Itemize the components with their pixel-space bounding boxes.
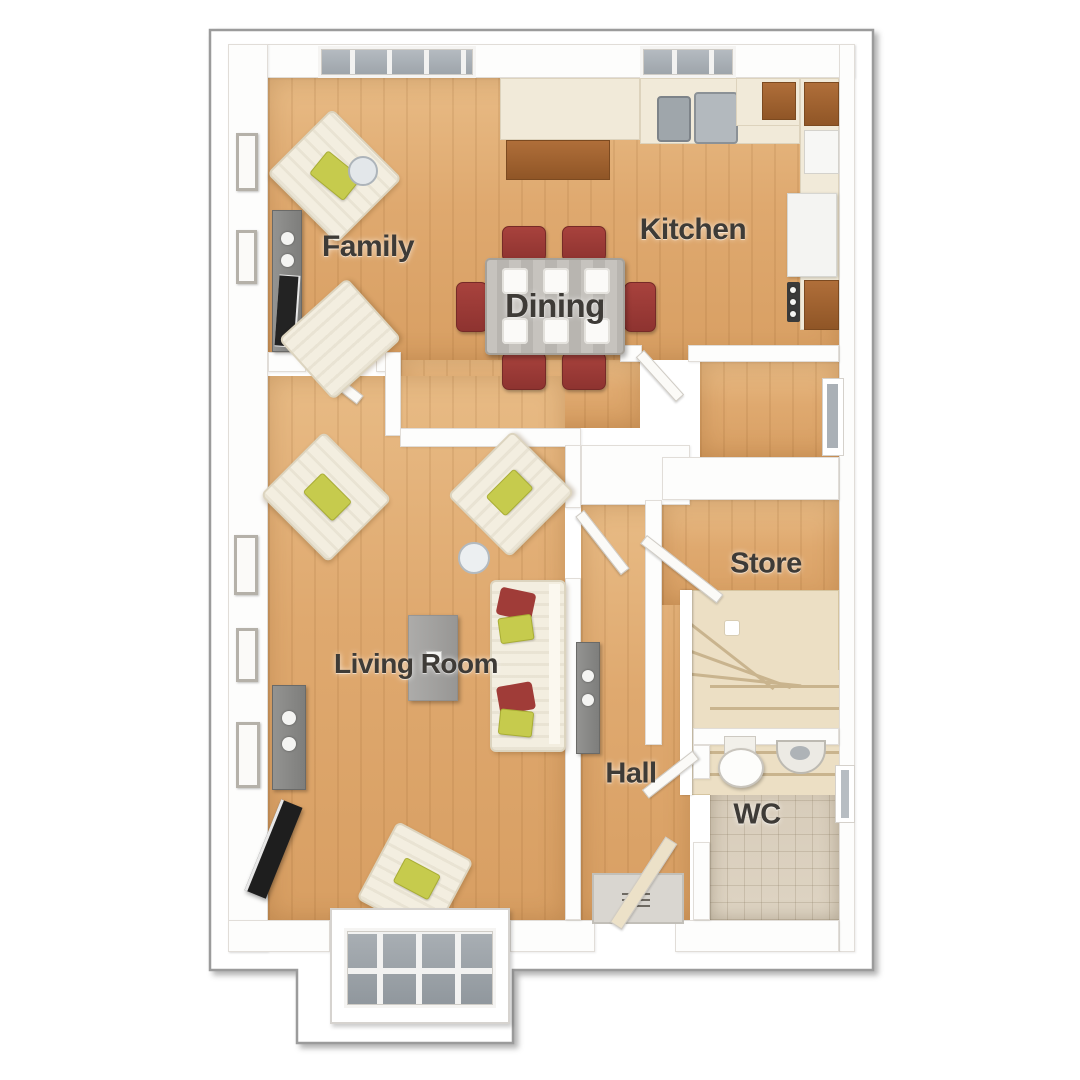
wall-family-living-jog (385, 352, 401, 436)
sofa-pillow-yellow (497, 614, 534, 644)
kitchen-window (640, 46, 736, 78)
dining-chair-top-2 (562, 226, 606, 262)
family-side-table (348, 156, 378, 186)
living-sideboard (272, 685, 306, 790)
wall-picture (234, 535, 258, 595)
room-label-store: Store (730, 548, 802, 581)
room-label-hall: Hall (605, 758, 656, 791)
kitchen-corner-cabinet (762, 82, 796, 120)
floorplan-canvas: Family Kitchen Dining Living Room Store … (0, 0, 1080, 1080)
living-sofa (490, 580, 566, 752)
living-side-table (458, 542, 490, 574)
rear-door (822, 378, 844, 456)
stair-newel-post (724, 620, 740, 636)
kitchen-sink-basin-left (657, 96, 691, 142)
kitchen-wall-cabinet-top (804, 82, 839, 126)
wall-lobby-store (662, 457, 839, 500)
kitchen-cooker-knobs (787, 282, 800, 322)
hall-radiator (576, 642, 600, 754)
wall-picture (236, 133, 258, 191)
wc-toilet (718, 748, 764, 788)
bay-window (330, 908, 510, 1024)
sofa-pillow-yellow (498, 708, 535, 737)
room-label-kitchen: Kitchen (640, 213, 747, 247)
wall-outer-bottom-right (675, 920, 839, 952)
dining-chair-left (456, 282, 488, 332)
family-window (318, 46, 476, 78)
kitchen-cooker (787, 193, 837, 277)
rear-door-glass (827, 384, 838, 448)
kitchen-fridge (804, 130, 839, 174)
wall-outer-bottom-left (228, 920, 330, 952)
room-label-family: Family (322, 230, 414, 264)
wall-dining-living (400, 428, 581, 447)
floor-rear-lobby (700, 362, 839, 457)
wc-window-glass (841, 770, 849, 818)
room-label-living-room: Living Room (334, 648, 498, 680)
wall-picture (236, 722, 260, 788)
wall-picture (236, 230, 257, 284)
dining-chair-bottom-1 (502, 352, 546, 390)
dining-chair-bottom-2 (562, 352, 606, 390)
wall-outer-bottom-mid (510, 920, 595, 952)
bay-window-glass (344, 928, 496, 1008)
dining-chair-right (624, 282, 656, 332)
wc-window (835, 765, 855, 823)
wall-picture (236, 628, 258, 682)
wall-wc-left-lower (693, 842, 710, 920)
wall-dining-lobby-b (688, 345, 839, 362)
kitchen-base-cabinet (804, 280, 839, 330)
kitchen-island-counter (500, 78, 640, 140)
dining-chair-top-1 (502, 226, 546, 262)
kitchen-island-cabinet (506, 140, 610, 180)
plan-body: Family Kitchen Dining Living Room Store … (210, 30, 873, 1043)
room-label-dining: Dining (505, 287, 605, 325)
kitchen-sink-basin-right (694, 92, 738, 144)
room-label-wc: WC (733, 799, 780, 832)
